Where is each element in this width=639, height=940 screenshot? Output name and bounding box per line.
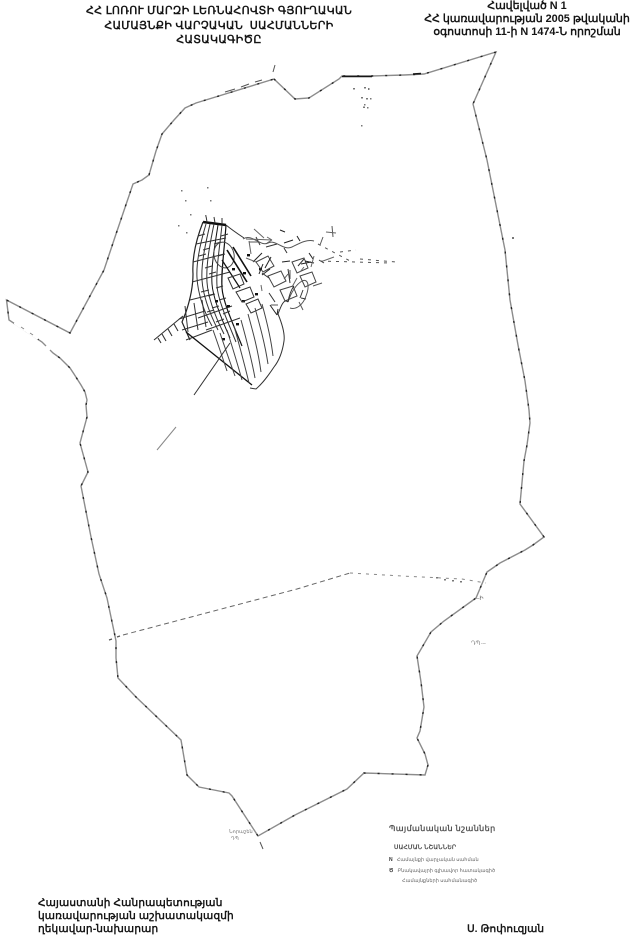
svg-text:–Ի: –Ի [476, 595, 483, 602]
svg-text:Նորաշեն: Նորաշեն [229, 829, 253, 835]
svg-text:ԴՊ: ԴՊ [231, 836, 239, 842]
svg-text:ԴՊ·–: ԴՊ·– [471, 640, 486, 647]
